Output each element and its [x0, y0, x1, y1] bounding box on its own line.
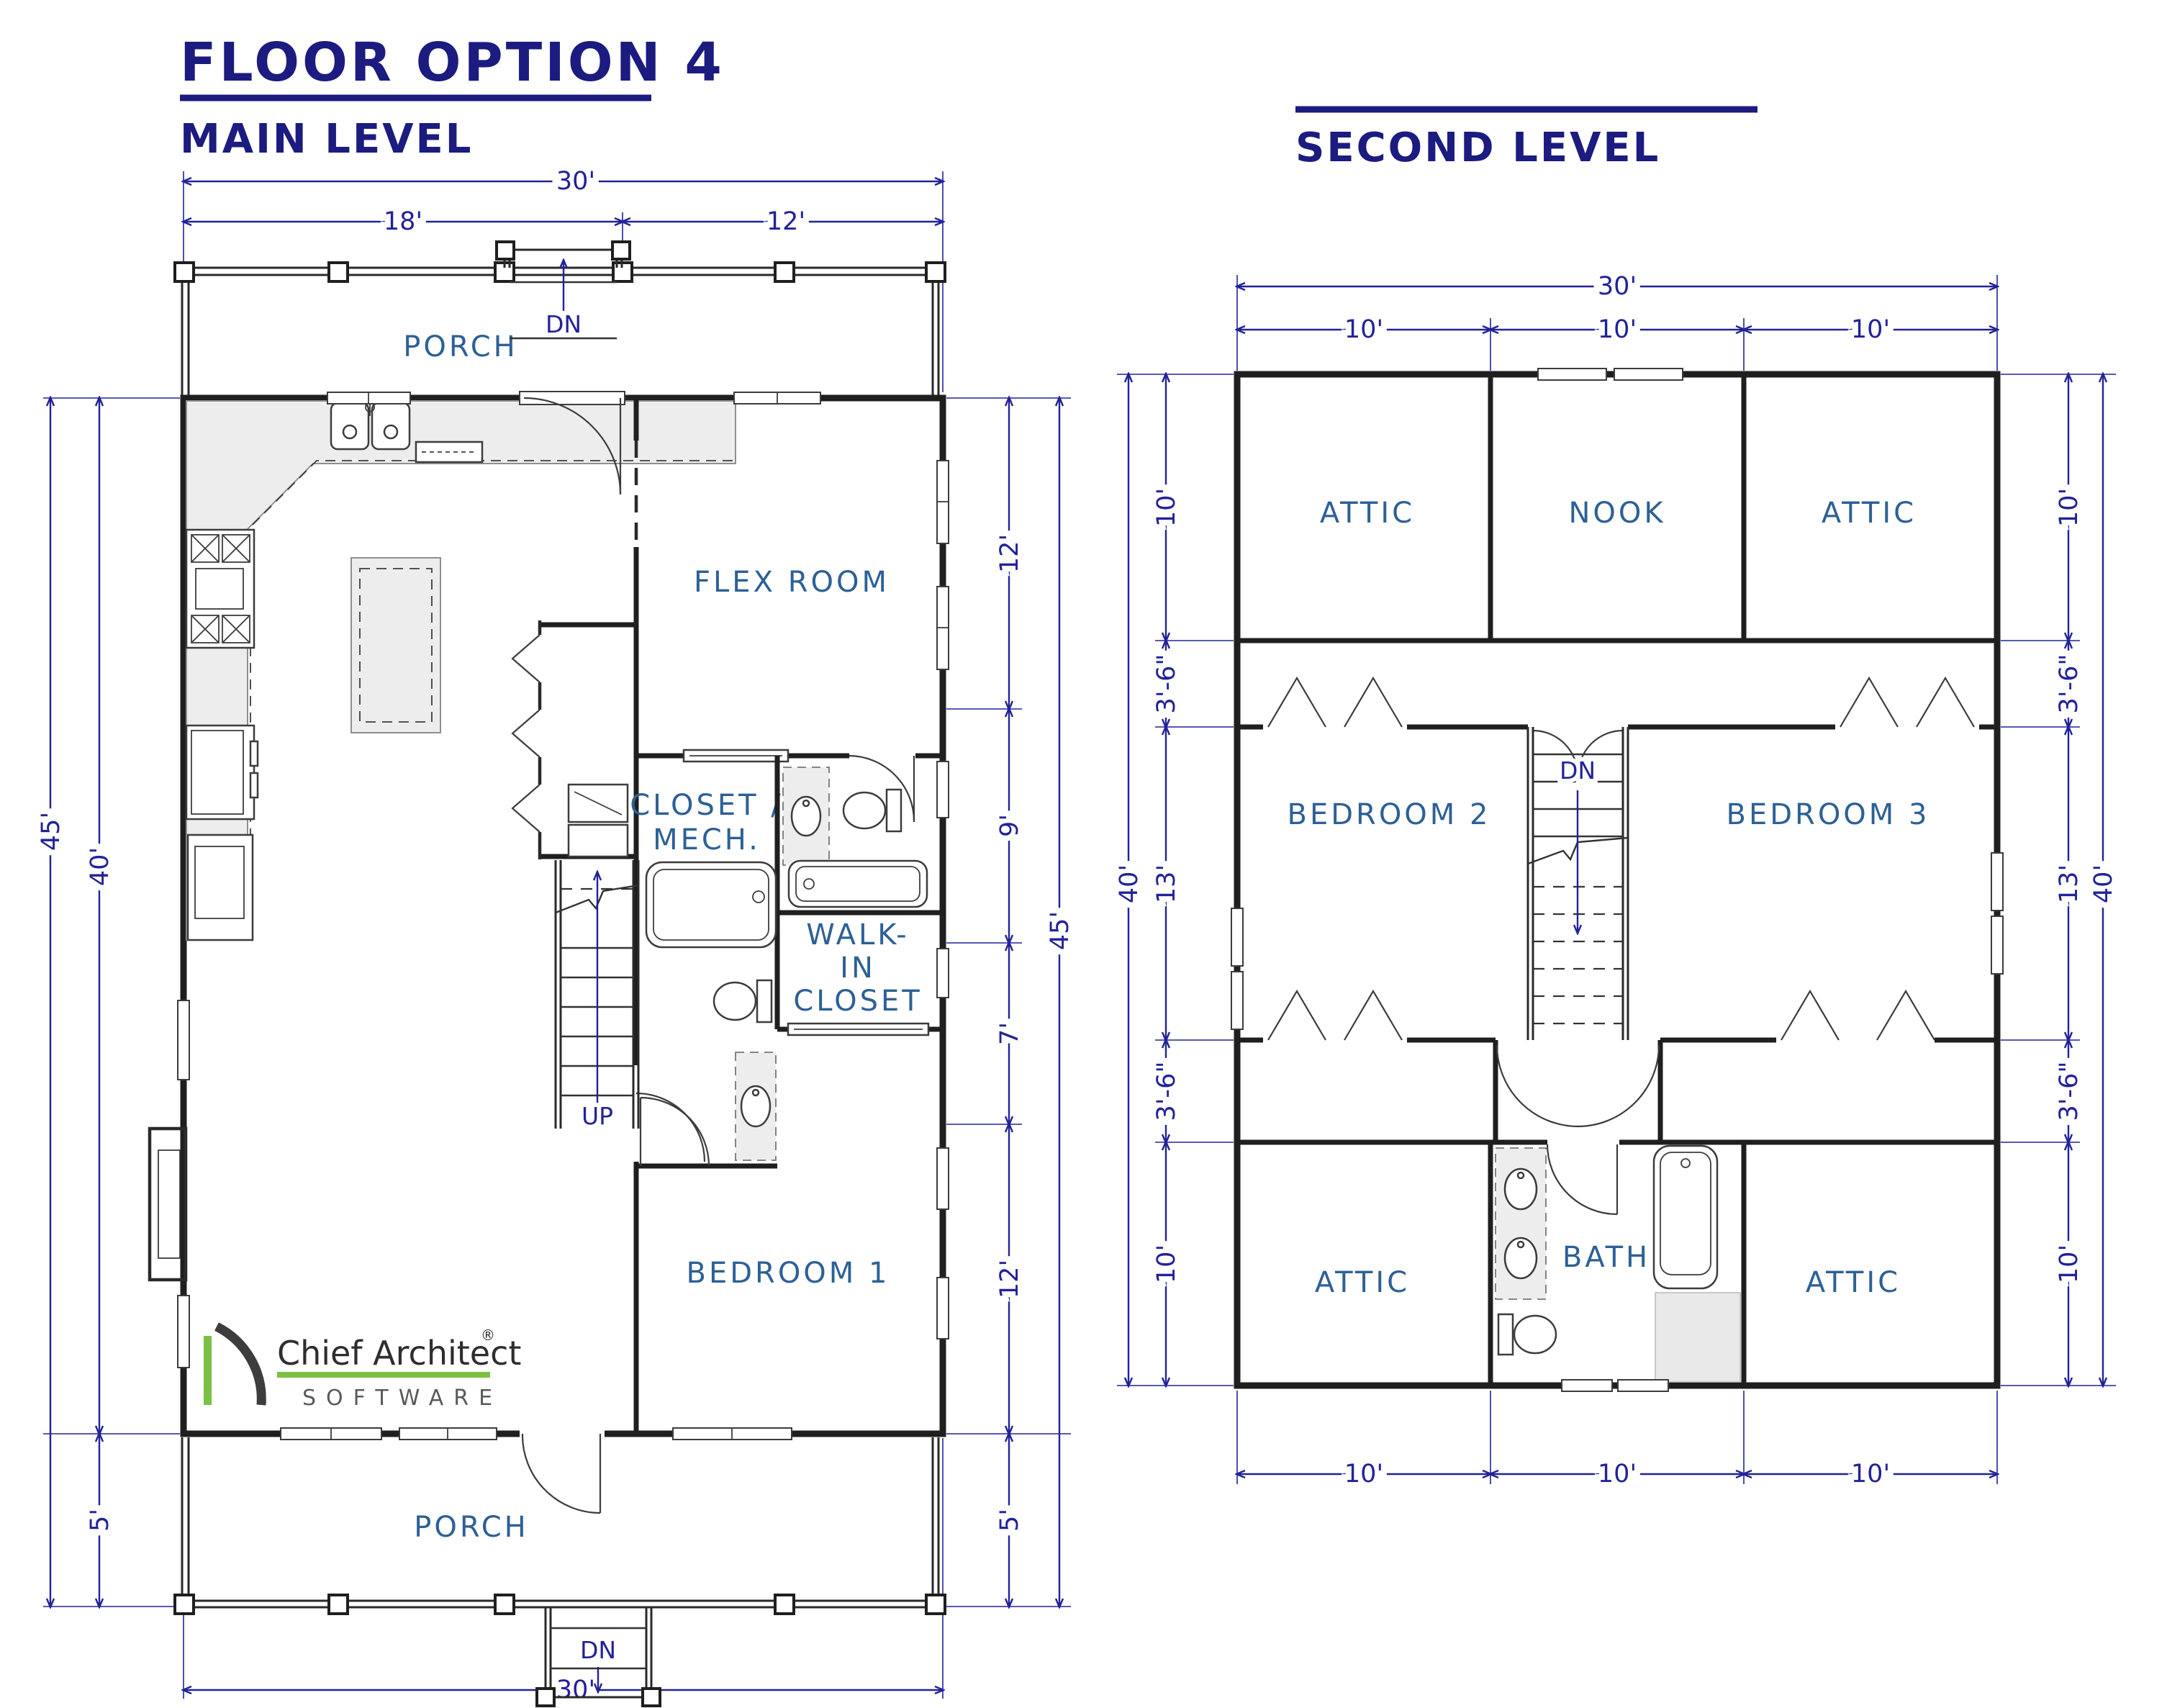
dishwasher — [416, 442, 482, 462]
hall-bath-tub-icon — [646, 862, 776, 947]
hall-bath-toilet-icon — [714, 980, 772, 1022]
room-label-attic-tr: ATTIC — [1822, 497, 1917, 530]
logo-green-bar-icon — [204, 1336, 212, 1405]
room-label-closet-mech-1: CLOSET / — [630, 789, 784, 822]
room-label-attic-bl: ATTIC — [1315, 1266, 1410, 1299]
closet-door-icon — [1268, 991, 1326, 1040]
title-block: FLOOR OPTION 4 MAIN LEVEL SECOND LEVEL — [180, 32, 1757, 171]
second-bath-toilet-icon — [1498, 1314, 1556, 1355]
closet-door-icon — [1877, 991, 1935, 1040]
closet-rod-shelf — [788, 1024, 928, 1035]
refrigerator-icon — [186, 726, 258, 819]
room-label-flex: FLEX ROOM — [694, 566, 890, 599]
dim-second-left-seg2: 3'-6" — [1152, 654, 1181, 714]
dim-second-left-seg5: 10' — [1152, 1244, 1181, 1283]
dim-main-top-right: 12' — [766, 207, 805, 236]
room-label-closet-mech-2: MECH. — [653, 823, 761, 857]
dim-second-right-seg5: 10' — [2055, 1244, 2084, 1283]
fireplace — [150, 1129, 186, 1280]
logo-registered-mark: ® — [481, 1327, 495, 1344]
second-stairs: DN — [1528, 727, 1628, 1040]
closet-door-icon — [1917, 678, 1974, 727]
second-level-plan: DN — [1231, 369, 2003, 1391]
room-label-walkin-1: WALK- — [806, 918, 909, 952]
bifold-door-icon — [512, 635, 540, 682]
dim-second-right-seg3: 13' — [2055, 864, 2084, 903]
room-label-bedroom1: BEDROOM 1 — [687, 1257, 890, 1290]
closet-door-icon — [1840, 678, 1898, 727]
entry-stairs-dn-label: DN — [546, 310, 582, 338]
dim-second-top-overall: 30' — [1598, 272, 1637, 301]
closet-door-icon — [1781, 991, 1839, 1040]
water-heater — [569, 785, 628, 857]
dim-second-right-seg4: 3'-6" — [2055, 1062, 2084, 1121]
dim-second-top-seg1: 10' — [1344, 315, 1383, 344]
room-label-walkin-2: IN — [840, 952, 876, 985]
main-level-plan: PORCH DN — [150, 242, 949, 1706]
lower-closets — [1237, 991, 1997, 1142]
dim-second-left-outer: 40' — [1115, 864, 1144, 903]
closet-shelf — [684, 750, 788, 762]
main-stairs-up-label: UP — [582, 1102, 613, 1130]
room-label-nook: NOOK — [1568, 497, 1665, 530]
kitchen-island — [351, 558, 440, 733]
dim-main-right-seg1: 12' — [995, 534, 1024, 573]
main-level-title: MAIN LEVEL — [180, 116, 473, 163]
upper-bath-toilet-icon — [843, 790, 901, 831]
logo-green-underline — [277, 1372, 490, 1378]
dim-second-bottom-seg3: 10' — [1851, 1460, 1890, 1488]
upper-bath-tub-icon — [789, 861, 927, 907]
dim-main-right-seg3: 7' — [995, 1022, 1024, 1045]
room-label-attic-tl: ATTIC — [1320, 497, 1415, 530]
floor-plan-drawing: FLOOR OPTION 4 MAIN LEVEL SECOND LEVEL 3… — [0, 0, 2167, 1708]
room-label-bedroom2: BEDROOM 2 — [1288, 798, 1491, 831]
second-level-title: SECOND LEVEL — [1295, 125, 1660, 171]
dim-main-right-seg2: 9' — [995, 814, 1024, 837]
kitchen — [186, 401, 736, 940]
wall-oven — [188, 835, 253, 940]
dim-main-left-outer: 45' — [37, 812, 65, 851]
porch-stairs: DN — [537, 1607, 660, 1706]
main-stairs: UP — [556, 860, 638, 1130]
walk-in-closet: WALK- IN CLOSET — [777, 913, 943, 1035]
upper-bath — [777, 756, 943, 913]
logo-arc-icon — [217, 1327, 261, 1405]
upper-closets — [1237, 678, 1997, 775]
dim-main-left-house: 40' — [86, 847, 114, 886]
dim-main-right-porch: 5' — [995, 1509, 1024, 1532]
second-stairs-dn-label: DN — [1560, 756, 1596, 785]
dim-second-bottom-seg2: 10' — [1598, 1460, 1637, 1488]
utility-closet — [512, 620, 636, 859]
dim-second-right-seg1: 10' — [2055, 488, 2084, 527]
room-label-porch-top: PORCH — [403, 330, 517, 363]
page-title: FLOOR OPTION 4 — [180, 32, 725, 94]
dim-main-top-overall: 30' — [556, 167, 595, 196]
hall-arch-icon — [1497, 1045, 1578, 1126]
closet-door-icon — [1268, 678, 1326, 727]
range-icon — [186, 530, 254, 648]
dim-second-bottom-seg1: 10' — [1344, 1460, 1383, 1488]
room-label-walkin-3: CLOSET — [793, 985, 922, 1018]
dim-second-top-seg2: 10' — [1598, 315, 1637, 344]
main-bottom-porch: PORCH DN — [175, 1437, 945, 1706]
dim-second-left-seg4: 3'-6" — [1152, 1062, 1181, 1121]
dim-second-right-seg2: 3'-6" — [2055, 654, 2084, 714]
dim-second-top-seg3: 10' — [1851, 315, 1890, 344]
room-label-bedroom3: BEDROOM 3 — [1727, 798, 1930, 831]
room-label-porch-bottom: PORCH — [414, 1511, 528, 1544]
second-level-dimensions: 30' 10' 10' 10' 10' 10' 10' 40' 10' 3'-6… — [1115, 272, 2118, 1488]
room-label-bath: BATH — [1562, 1241, 1650, 1274]
main-entry-stairs: DN — [497, 242, 630, 338]
dim-main-right-outer: 45' — [1046, 911, 1075, 950]
hall-bath-door-arc — [641, 1098, 709, 1166]
hall-bath — [636, 857, 777, 1434]
dim-main-top-left: 18' — [384, 207, 422, 236]
second-bath-tub-icon — [1654, 1146, 1717, 1288]
rear-door — [520, 1428, 605, 1513]
chief-architect-logo: Chief Architect ® SOFTWARE — [204, 1327, 521, 1411]
bath-floor-patch — [1655, 1293, 1740, 1382]
dim-main-right-seg4: 12' — [995, 1260, 1024, 1298]
room-label-attic-br: ATTIC — [1806, 1266, 1901, 1299]
dim-second-left-seg3: 13' — [1152, 864, 1181, 903]
bifold-door-icon — [512, 785, 540, 832]
porch-stairs-dn-label: DN — [580, 1636, 616, 1664]
closet-door-icon — [1344, 678, 1402, 727]
logo-software-text: SOFTWARE — [302, 1386, 502, 1411]
floor-plan-sheet: FLOOR OPTION 4 MAIN LEVEL SECOND LEVEL 3… — [0, 0, 2167, 1708]
dim-second-right-outer: 40' — [2089, 864, 2118, 903]
bath-door-arc — [1547, 1144, 1617, 1214]
closet-door-icon — [1344, 991, 1402, 1040]
dim-main-bottom-overall: 30' — [556, 1676, 595, 1704]
bifold-door-icon — [512, 710, 540, 757]
dim-main-left-porch: 5' — [86, 1509, 114, 1532]
hall-arch-icon — [1578, 1045, 1659, 1126]
dim-second-left-seg1: 10' — [1152, 488, 1181, 527]
bedroom1-door-arc — [636, 1093, 705, 1162]
